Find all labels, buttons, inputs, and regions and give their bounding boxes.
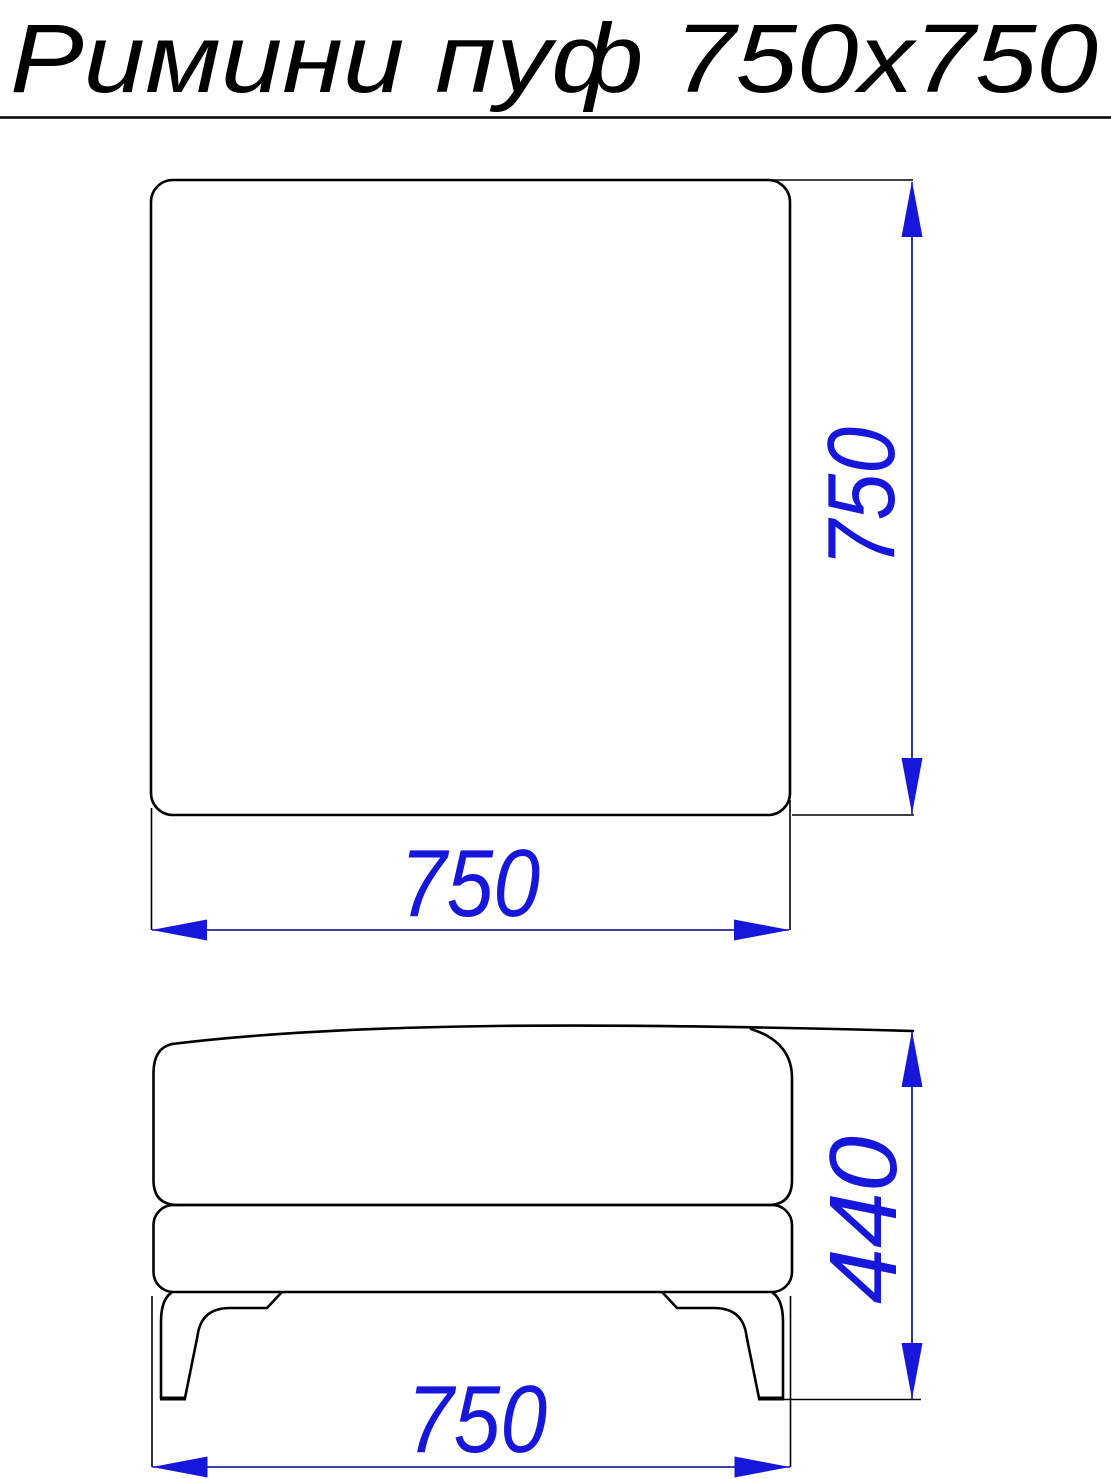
drawing-title: Римини пуф 750х750 [10, 4, 1098, 113]
arrowhead-left-icon [152, 1457, 208, 1478]
dimension-width-750-front: 750 [152, 1366, 790, 1478]
base-band [154, 1205, 793, 1292]
dimension-height-750: 750 [808, 181, 923, 814]
arrowhead-right-icon [735, 1457, 791, 1478]
technical-drawing: Римини пуф 750х750 750 750 [0, 0, 1111, 1479]
dimension-value-height: 440 [810, 1136, 917, 1304]
top-view-outline [151, 180, 790, 815]
arrowhead-left-icon [152, 920, 208, 941]
dimension-value-width: 750 [400, 830, 540, 937]
arrowhead-down-icon [902, 758, 923, 814]
arrowhead-right-icon [734, 920, 790, 941]
dimension-value-width: 750 [407, 1366, 547, 1473]
arrowhead-down-icon [902, 1343, 923, 1399]
dimension-value-height: 750 [808, 427, 915, 567]
right-leg [663, 1293, 783, 1398]
arrowhead-up-icon [902, 1031, 923, 1087]
left-leg [161, 1293, 281, 1398]
cushion-body [154, 1029, 793, 1205]
dimension-width-750: 750 [152, 830, 790, 941]
top-view: 750 750 [151, 180, 923, 941]
drawing-sheet: Римини пуф 750х750 750 750 [0, 0, 1111, 1479]
dimension-height-440: 440 [810, 1031, 923, 1399]
cushion-top-arc [172, 1025, 913, 1044]
front-view: 440 750 [152, 1025, 923, 1477]
arrowhead-up-icon [902, 181, 923, 237]
